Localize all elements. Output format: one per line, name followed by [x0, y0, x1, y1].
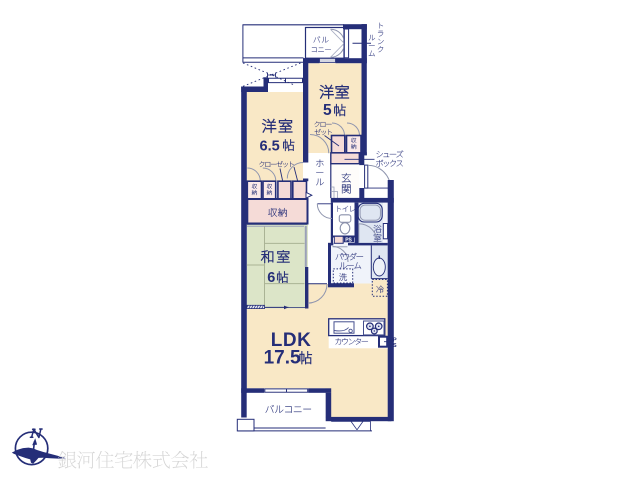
svg-text:17.5: 17.5	[264, 347, 301, 368]
svg-text:S: S	[393, 343, 397, 349]
svg-text:5: 5	[323, 102, 332, 119]
svg-text:PS: PS	[345, 237, 352, 243]
svg-text:6: 6	[267, 270, 275, 286]
svg-text:6.5: 6.5	[260, 138, 280, 154]
